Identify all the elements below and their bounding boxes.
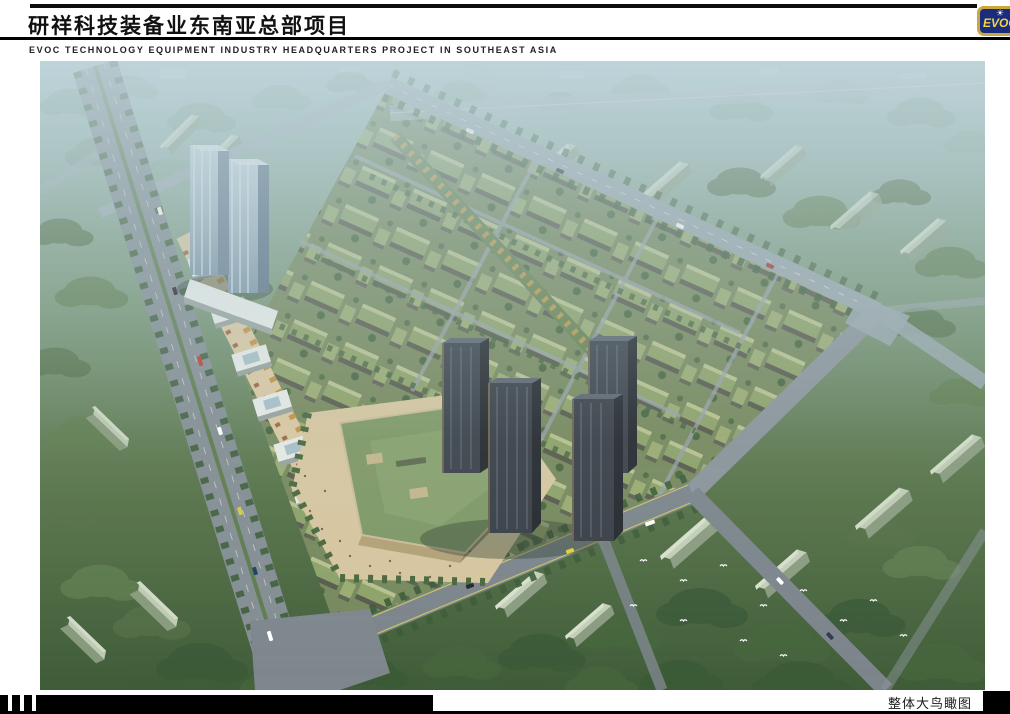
footer-stripe — [12, 695, 20, 711]
haze-overlay — [40, 61, 985, 690]
evoc-logo-text: EVOC — [983, 17, 1010, 29]
footer-bar — [36, 695, 433, 711]
render-caption: 整体大鸟瞰图 — [888, 693, 972, 712]
title-divider — [0, 37, 1010, 40]
aerial-render — [40, 61, 985, 690]
presentation-board: { "header": { "title": "研祥科技装备业东南亚总部项目",… — [0, 0, 1010, 714]
footer-corner-square — [983, 691, 1010, 714]
evoc-logo: ☀ EVOC — [977, 6, 1010, 36]
page-subtitle: EVOC TECHNOLOGY EQUIPMENT INDUSTRY HEADQ… — [29, 45, 558, 55]
footer-stripe — [0, 695, 8, 711]
page-title: 研祥科技装备业东南亚总部项目 — [28, 10, 350, 40]
footer-stripe — [24, 695, 32, 711]
header-top-bar — [30, 4, 977, 8]
aerial-render-frame — [40, 61, 985, 690]
